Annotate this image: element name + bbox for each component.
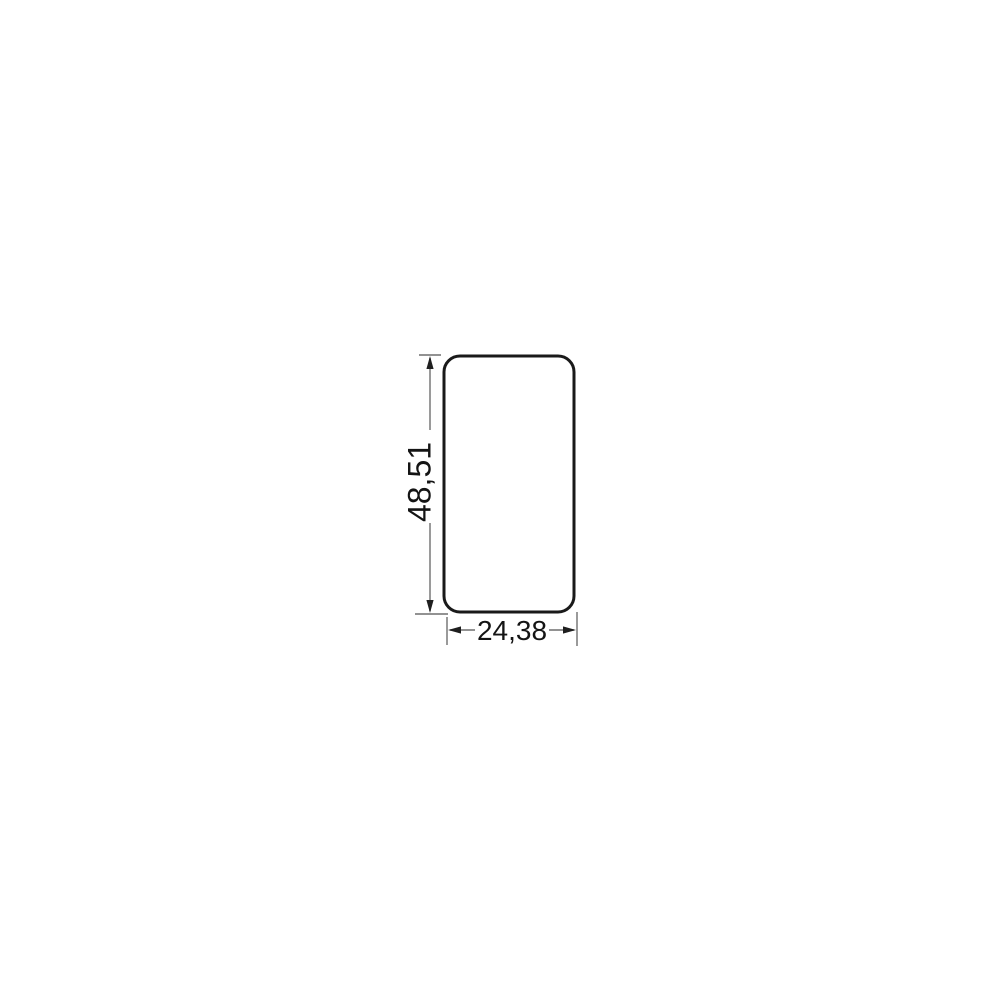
technical-drawing: 48,51 24,38 (0, 0, 1000, 1000)
height-dimension-label: 48,51 (402, 442, 438, 522)
drawing-canvas: 48,51 24,38 (0, 0, 1000, 1000)
height-dimension: 48,51 (402, 355, 449, 614)
height-arrowhead-up (426, 356, 433, 369)
width-dimension: 24,38 (447, 612, 577, 646)
height-arrowhead-down (426, 600, 433, 613)
width-arrowhead-left (448, 626, 461, 633)
rounded-rectangle-outline (444, 356, 574, 612)
width-arrowhead-right (563, 626, 576, 633)
width-dimension-label: 24,38 (477, 615, 547, 646)
